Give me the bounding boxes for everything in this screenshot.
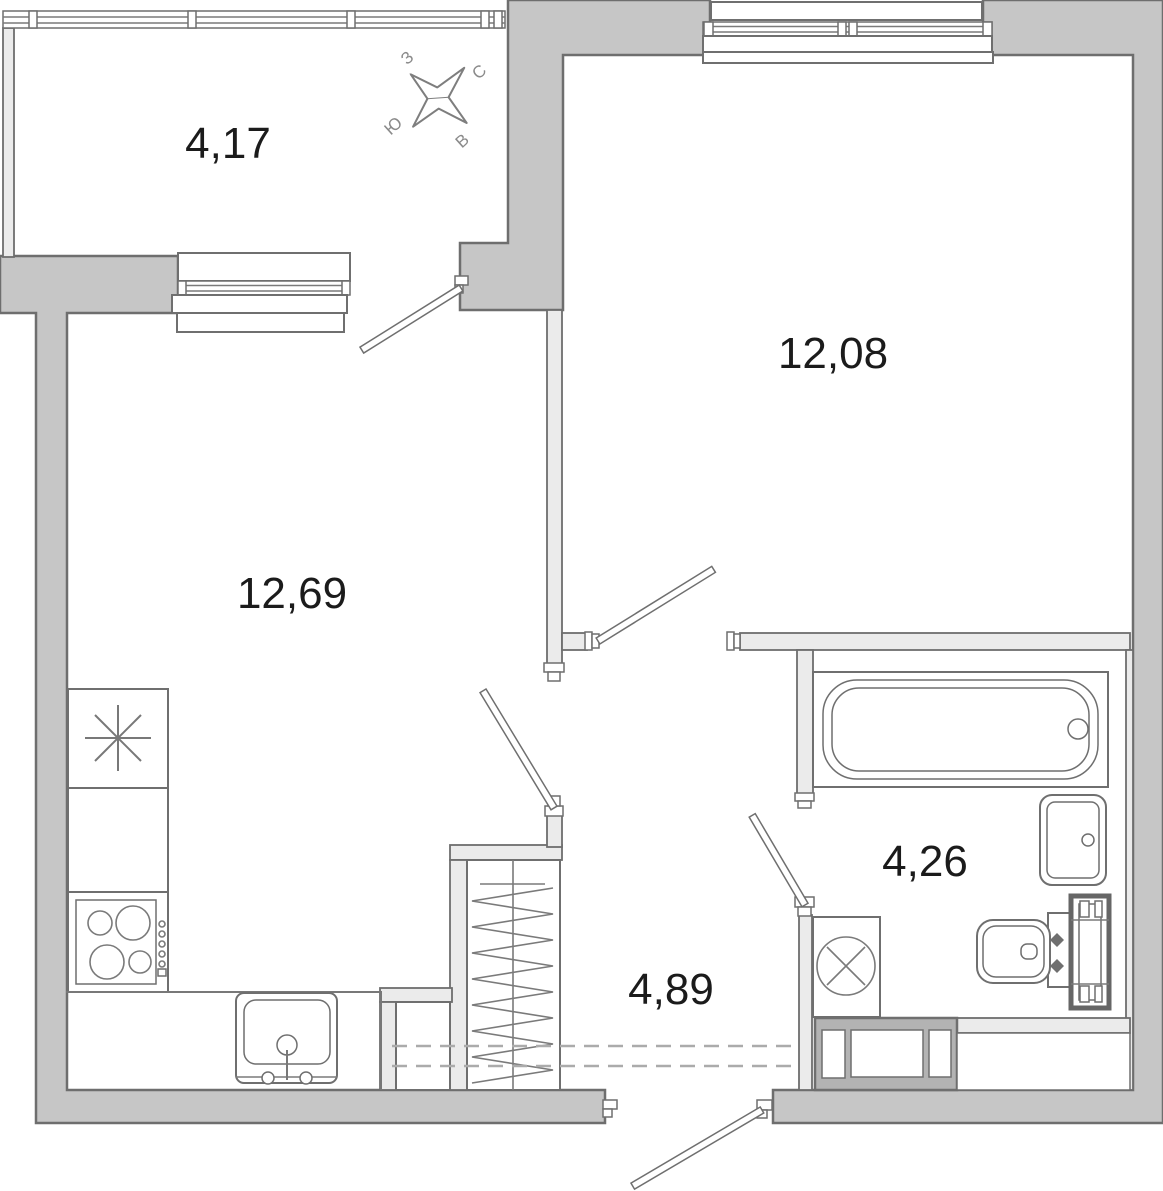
partition-bathroom-top [740, 633, 1130, 650]
balcony-room-window [172, 253, 350, 332]
bathroom-stub-end-cap [795, 793, 814, 808]
vent-shaft [815, 1018, 957, 1090]
compass-south-label: Ю [381, 113, 406, 139]
balcony-side-glazing [3, 28, 14, 257]
floor-plan: С З Ю В 4,17 12,08 12,69 4,26 4,89 [0, 0, 1163, 1191]
interior-partitions [3, 28, 1133, 1090]
bathroom-niche [957, 1033, 1130, 1090]
entrance-door-jamb-left [603, 1100, 617, 1117]
bathroom-wall-jamb [727, 632, 740, 650]
room-right-door-leaf [596, 566, 715, 644]
partition-above-wardrobe [547, 815, 562, 847]
room-right-door-jamb [585, 632, 599, 650]
floor-plan-page: С З Ю В 4,17 12,08 12,69 4,26 4,89 [0, 0, 1163, 1191]
wardrobe [467, 860, 560, 1090]
kitchen-sink [236, 993, 337, 1084]
washing-machine [813, 917, 880, 1017]
partition-niche-stripe [957, 1018, 1130, 1033]
entrance-door-leaf [631, 1107, 764, 1189]
bathroom-sink [1040, 795, 1106, 885]
room-right-area-label: 12,08 [778, 329, 888, 378]
partition-bathroom-left-upper [797, 650, 813, 795]
wardrobe-door-leaf [480, 689, 557, 810]
partition-wardrobe-left [450, 860, 467, 1090]
compass-west-label: З [397, 47, 417, 68]
bathroom-area-label: 4,26 [882, 837, 968, 886]
bathtub [813, 672, 1108, 787]
stove [68, 892, 168, 992]
balcony-area-label: 4,17 [185, 119, 271, 168]
towel-radiator [1071, 896, 1109, 1008]
compass-east-label: В [452, 130, 473, 152]
partition-wardrobe-top [450, 845, 562, 860]
room-right-window [703, 2, 993, 63]
divider-wall-end-cap [544, 663, 564, 681]
fridge [68, 689, 168, 788]
compass-north-label: С [468, 61, 490, 83]
room-left-area-label: 12,69 [237, 569, 347, 618]
partition-cabinet-top [380, 988, 452, 1002]
wall-balcony-right-band [460, 0, 710, 310]
balcony-glazing-window [3, 11, 505, 28]
hallway-area-label: 4,89 [628, 965, 714, 1014]
partition-hall-stub [562, 633, 587, 650]
partition-rooms-divider [547, 310, 562, 665]
bathroom-door-leaf [749, 814, 808, 907]
partition-bathroom-left-lower [799, 915, 812, 1090]
compass-rose: С З Ю В [381, 44, 493, 152]
kitchen-cabinet [68, 788, 168, 892]
balcony-door-leaf [360, 285, 463, 353]
toilet [977, 913, 1072, 987]
